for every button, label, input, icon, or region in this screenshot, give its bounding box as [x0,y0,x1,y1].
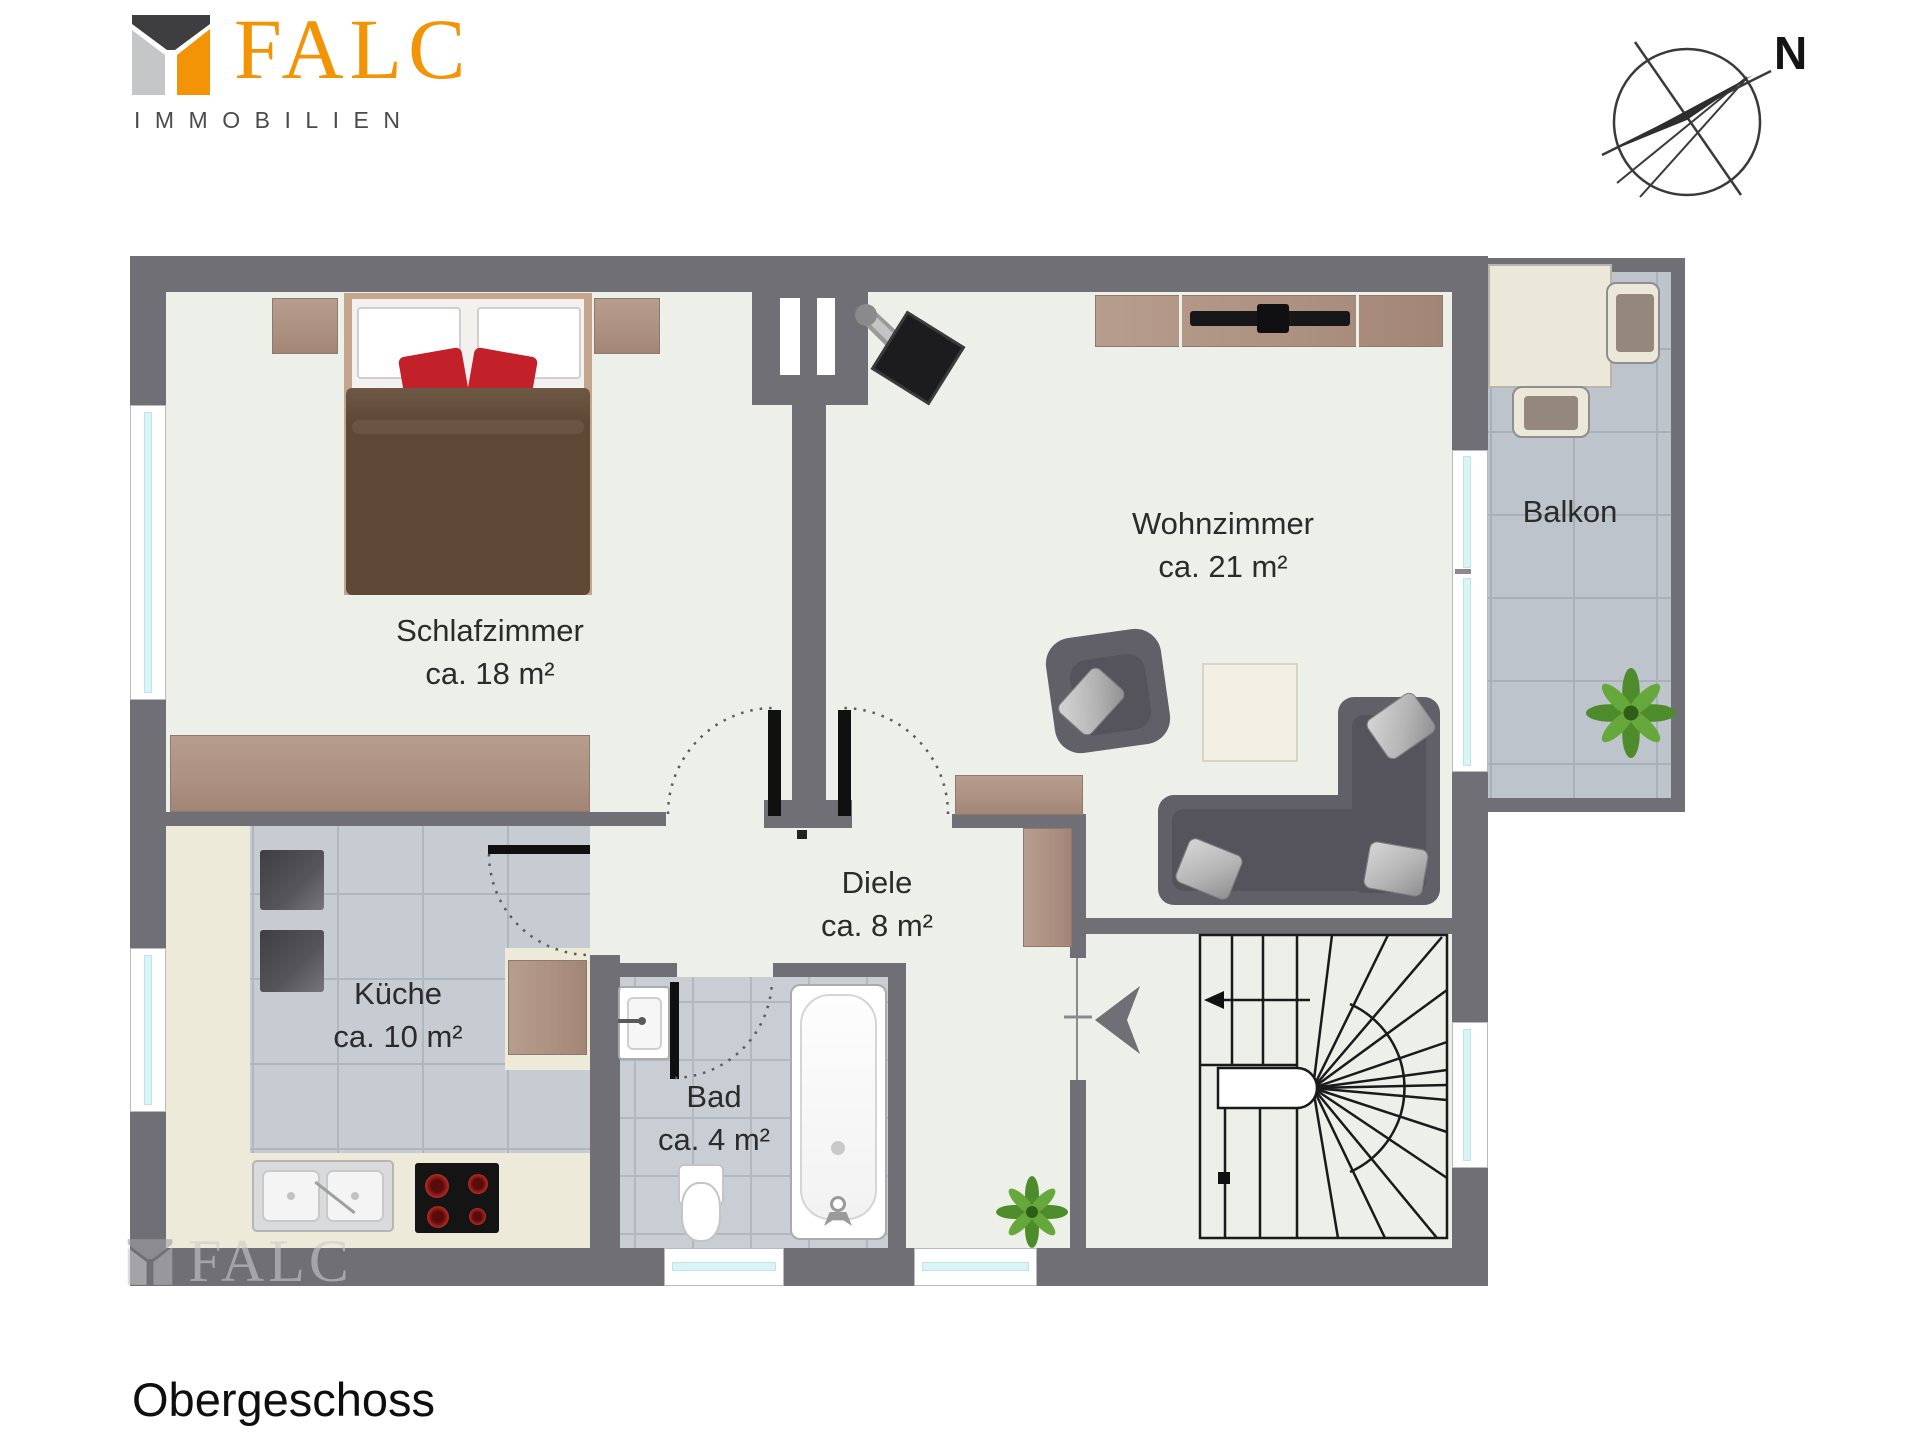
plant-balcony-icon [1574,656,1687,769]
stair-landing [1218,1068,1317,1108]
label-bad: Bad ca. 4 m² [554,1075,874,1161]
room-name: Balkon [1410,490,1730,533]
room-name: Bad [554,1075,874,1118]
falc-watermark: FALC [126,1238,353,1286]
plan-overlay [0,0,1919,1440]
door-arc-kitchen [489,854,590,955]
door-arc-bedroom [668,708,774,814]
door-arc-bath [675,980,772,1078]
door-arc-living [844,708,948,814]
room-name: Diele [717,861,1037,904]
room-name: Küche [238,972,558,1015]
room-name: Wohnzimmer [1063,502,1383,545]
floor-label: Obergeschoss [132,1372,435,1427]
label-wohnzimmer: Wohnzimmer ca. 21 m² [1063,502,1383,588]
label-diele: Diele ca. 8 m² [717,861,1037,947]
label-schlafzimmer: Schlafzimmer ca. 18 m² [330,609,650,695]
stair-newel-mark [1218,1172,1230,1184]
label-kueche: Küche ca. 10 m² [238,972,558,1058]
plant-hall-icon [987,1167,1078,1258]
watermark-mark-icon [126,1238,174,1286]
room-area: ca. 18 m² [330,652,650,695]
stair-direction-arrowhead [1204,991,1224,1009]
entry-arrow [1095,986,1140,1054]
floorplan-page: FALC IMMOBILIEN N [0,0,1919,1440]
room-area: ca. 4 m² [554,1118,874,1161]
label-balkon: Balkon [1410,490,1730,533]
room-area: ca. 21 m² [1063,545,1383,588]
room-area: ca. 10 m² [238,1015,558,1058]
room-name: Schlafzimmer [330,609,650,652]
watermark-text: FALC [188,1238,353,1285]
room-area: ca. 8 m² [717,904,1037,947]
